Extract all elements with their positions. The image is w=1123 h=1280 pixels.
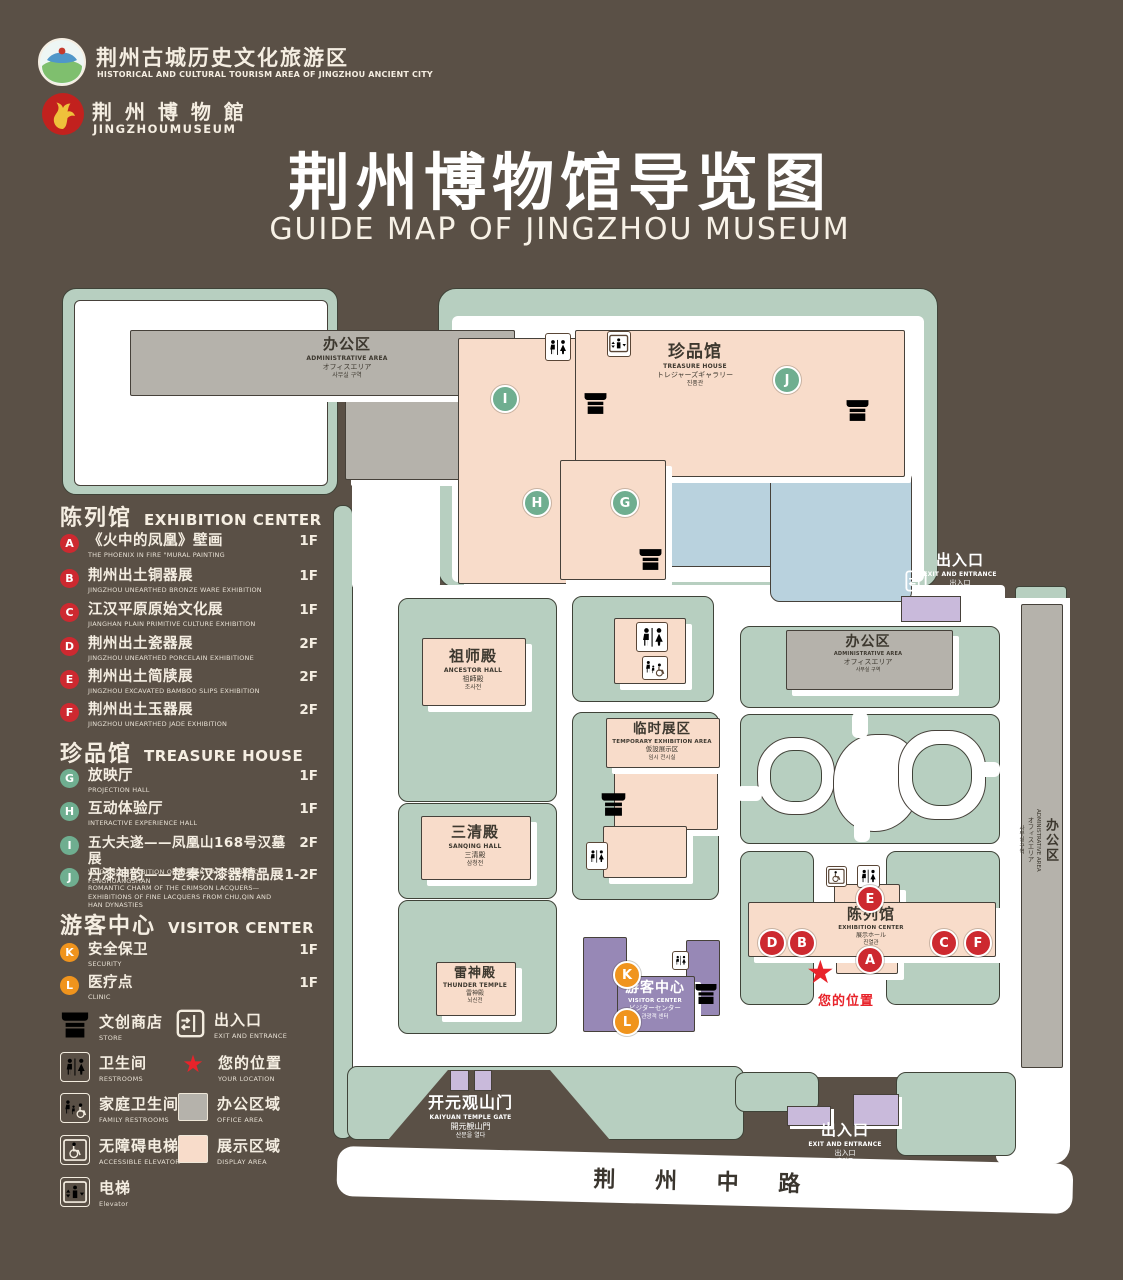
legend-row-C: C 江汉平原原始文化展JIANGHAN PLAIN PRIMITIVE CULT… [60, 602, 318, 629]
admin-c-jp: オフィスエリア [844, 658, 893, 666]
ancestor-jp: 祖師殿 [463, 675, 484, 683]
map-band-southeast [896, 1072, 1016, 1156]
admin-east-jp: オフィスエリア [1025, 700, 1035, 980]
store-icon [638, 546, 663, 573]
section-visitor-zh: 游客中心 [60, 908, 156, 940]
entrance-icon [176, 1009, 205, 1038]
treasure-zh: 珍品馆 [668, 342, 722, 362]
your-location-star: ★ [806, 956, 835, 988]
garden-path-n [852, 712, 868, 738]
accessible-elevator-icon [826, 866, 847, 887]
family-restroom-icon [60, 1093, 90, 1123]
section-treasure-zh: 珍品馆 [60, 736, 132, 768]
store-icon [60, 1011, 90, 1039]
store-icon [845, 397, 870, 424]
thunder-temple-label: 雷神殿 THUNDER TEMPLE 雷神殿 뇌신전 [410, 966, 540, 1005]
treasure-house-label: 珍品馆 TREASURE HOUSE トレジャーズギャラリー 진품관 [610, 342, 780, 387]
thunder-en: THUNDER TEMPLE [443, 982, 507, 989]
tourism-area-logo [38, 38, 86, 86]
exhibition-en: EXHIBITION CENTER [838, 925, 903, 931]
road-jingzhou-middle: 荆 州 中 路 [336, 1146, 1073, 1214]
admin-building-east-label: 办公区 ADMINISTRATIVE AREA オフィスエリア 사무실 구역 [1022, 700, 1060, 980]
thunder-zh: 雷神殿 [454, 966, 496, 981]
admin-nw-zh: 办公区 [323, 336, 371, 354]
page-title: 荆州博物馆导览图 [210, 132, 910, 222]
section-exhibition-center: 陈列馆 EXHIBITION CENTER [60, 500, 322, 532]
map-strip-west [333, 505, 353, 1139]
sanqing-kr: 삼청전 [467, 860, 484, 867]
sanqing-hall-label: 三清殿 SANQING HALL 三清殿 삼청전 [410, 824, 540, 867]
section-exhibition-en: EXHIBITION CENTER [144, 511, 322, 529]
entrance-s-jp: 出入口 [835, 1149, 856, 1157]
museum-name: 荆 州 博 物 館 [92, 96, 247, 125]
admin-nw-kr: 사무실 구역 [332, 372, 362, 379]
map-marker-K: K [613, 961, 641, 989]
ancestor-zh: 祖师殿 [449, 648, 497, 666]
map-marker-I: I [491, 385, 519, 413]
gate-jp: 開元観山門 [451, 1122, 491, 1131]
office-area-swatch [178, 1093, 208, 1121]
legend-row-K: K 安全保卫SECURITY 1F [60, 942, 318, 969]
entrance-ne-en: EXIT AND ENTRANCE [923, 571, 996, 578]
legend-row-E: E 荆州出土简牍展JINGZHOU EXCAVATED BAMBOO SLIPS… [60, 669, 318, 696]
garden-island-west [770, 750, 822, 802]
legend-elevator: 电梯Elevator [60, 1177, 131, 1208]
restroom-icon [636, 622, 668, 652]
display-area-swatch [178, 1135, 208, 1163]
gate-pillar [474, 1070, 492, 1091]
garden-island-east [912, 744, 972, 806]
legend-row-D: D 荆州出土瓷器展JINGZHOU UNEARTHED PORCELAIN EX… [60, 636, 318, 663]
elevator-icon [60, 1177, 90, 1207]
temporary-kr: 임시 전시실 [648, 755, 675, 761]
gate-en: KAIYUAN TEMPLE GATE [430, 1114, 512, 1121]
store-icon [600, 790, 627, 819]
legend-row-A: A 《火中的凤凰》壁画THE PHOENIX IN FIRE "MURAL PA… [60, 533, 318, 560]
guide-map-poster: 荆州古城历史文化旅游区 HISTORICAL AND CULTURAL TOUR… [0, 0, 1123, 1280]
section-exhibition-zh: 陈列馆 [60, 500, 132, 532]
elevator-icon [607, 331, 631, 357]
path-connector-west [352, 478, 440, 590]
legend-store: 文创商店STORE [60, 1011, 163, 1042]
gate-structure [901, 596, 961, 622]
map-marker-D: D [758, 929, 786, 957]
treasure-kr: 진품관 [687, 380, 704, 387]
entrance-ne-kr: 출입구 [952, 588, 969, 595]
ancestor-en: ANCESTOR HALL [444, 667, 502, 674]
admin-east-kr: 사무실 구역 [1017, 700, 1025, 980]
kaiyuan-gate-label: 开元观山门 KAIYUAN TEMPLE GATE 開元観山門 산문을 열다 [398, 1094, 543, 1139]
temporary-jp: 仮設展示区 [646, 746, 679, 754]
location-star-icon: ★ [180, 1052, 206, 1076]
restroom-icon [545, 333, 571, 361]
entrance-northeast-label: 出入口 EXIT AND ENTRANCE 出入口 출입구 [905, 552, 1015, 595]
admin-nw-en: ADMINISTRATIVE AREA [306, 355, 387, 362]
map-marker-L: L [613, 1008, 641, 1036]
garden-path-w [736, 786, 762, 801]
admin-c-zh: 办公区 [846, 634, 891, 651]
your-location-label: 您的位置 [798, 990, 894, 1009]
garden-path-e [972, 762, 1000, 777]
temporary-exhibition-middle [614, 764, 718, 830]
entrance-ne-zh: 出入口 [936, 552, 984, 570]
entrance-s-zh: 出入口 [821, 1122, 869, 1140]
treasure-jp: トレジャーズギャラリー [657, 371, 733, 379]
map-marker-G: G [611, 489, 639, 517]
treasure-en: TREASURE HOUSE [663, 363, 727, 370]
legend-row-B: B 荆州出土铜器展JINGZHOU UNEARTHED BRONZE WARE … [60, 568, 318, 595]
legend-display-area: 展示区域DISPLAY AREA [178, 1135, 281, 1166]
museum-logo [42, 93, 84, 135]
map-marker-C: C [930, 929, 958, 957]
tourism-area-name: 荆州古城历史文化旅游区 [96, 42, 349, 72]
temporary-exhibition-south [603, 826, 687, 878]
thunder-jp: 雷神殿 [466, 990, 484, 997]
tourism-area-name-en: HISTORICAL AND CULTURAL TOURISM AREA OF … [97, 70, 433, 79]
admin-c-kr: 사무실 구역 [856, 668, 881, 674]
thunder-kr: 뇌신전 [467, 998, 482, 1004]
legend-row-F: F 荆州出土玉器展JINGZHOU UNEARTHED JADE EXHIBIT… [60, 702, 318, 729]
sanqing-jp: 三清殿 [465, 851, 486, 859]
legend-row-J: J 丹漆神韵——楚秦汉漆器精品展ROMANTIC CHARM OF THE CR… [60, 867, 318, 910]
legend-row-H: H 互动体验厅INTERACTIVE EXPERIENCE HALL 1F [60, 801, 318, 828]
restroom-icon [672, 951, 689, 970]
entrance-ne-jp: 出入口 [950, 579, 971, 587]
gate-kr: 산문을 열다 [456, 1132, 486, 1139]
legend-restrooms: 卫生间RESTROOMS [60, 1052, 147, 1083]
store-icon [583, 390, 608, 417]
restroom-icon [586, 842, 608, 870]
ancestor-kr: 조사전 [465, 684, 482, 691]
garden-path-s [854, 816, 870, 842]
legend-row-L: L 医疗点CLINIC 1F [60, 975, 318, 1002]
map-marker-E: E [856, 885, 884, 913]
page-subtitle: GUIDE MAP OF JINGZHOU MUSEUM [210, 212, 910, 247]
legend-entrance: 出入口EXIT AND ENTRANCE [176, 1009, 287, 1040]
accessible-elevator-icon [60, 1135, 90, 1165]
visitor-kr: 관광객 센터 [641, 1014, 668, 1020]
temporary-exhibition-label: 临时展区 TEMPORARY EXHIBITION AREA 仮設展示区 임시 … [601, 722, 723, 762]
sanqing-en: SANQING HALL [448, 843, 501, 850]
map-marker-J: J [773, 366, 801, 394]
road-label: 荆 州 中 路 [593, 1161, 817, 1198]
admin-nw-jp: オフィスエリア [323, 363, 372, 371]
temporary-zh: 临时展区 [633, 722, 691, 738]
ancestor-hall-label: 祖师殿 ANCESTOR HALL 祖師殿 조사전 [408, 648, 538, 691]
legend-accessible-elevator: 无障碍电梯ACCESSIBLE ELEVATOR [60, 1135, 180, 1166]
section-visitor-center: 游客中心 VISITOR CENTER [60, 908, 314, 940]
admin-east-en: ADMINISTRATIVE AREA [1035, 700, 1041, 980]
admin-c-en: ADMINISTRATIVE AREA [834, 652, 902, 658]
admin-east-zh: 办公区 [1041, 700, 1060, 980]
section-treasure-en: TREASURE HOUSE [144, 747, 303, 765]
store-icon [694, 980, 718, 1008]
gate-pillar [450, 1070, 469, 1091]
family-restroom-icon [642, 656, 668, 680]
legend-family-restrooms: 家庭卫生间FAMILY RESTROOMS [60, 1093, 179, 1124]
pond-fill [772, 474, 906, 561]
section-visitor-en: VISITOR CENTER [168, 919, 314, 937]
map-marker-A: A [856, 946, 884, 974]
legend-office-area: 办公区域OFFICE AREA [178, 1093, 281, 1124]
gate-zh: 开元观山门 [428, 1094, 513, 1113]
admin-central-label: 办公区 ADMINISTRATIVE AREA オフィスエリア 사무실 구역 [792, 634, 944, 674]
section-treasure-house: 珍品馆 TREASURE HOUSE [60, 736, 303, 768]
admin-northwest-label: 办公区 ADMINISTRATIVE AREA オフィスエリア 사무실 구역 [272, 336, 422, 379]
restroom-icon [60, 1052, 90, 1082]
map-marker-F: F [964, 929, 992, 957]
entrance-s-en: EXIT AND ENTRANCE [808, 1141, 881, 1148]
exhibition-jp: 展示ホール [856, 932, 886, 939]
sanqing-zh: 三清殿 [451, 824, 499, 842]
legend-row-G: G 放映厅PROJECTION HALL 1F [60, 768, 318, 795]
legend-your-location: ★ 您的位置YOUR LOCATION [180, 1052, 282, 1083]
map-marker-H: H [523, 489, 551, 517]
